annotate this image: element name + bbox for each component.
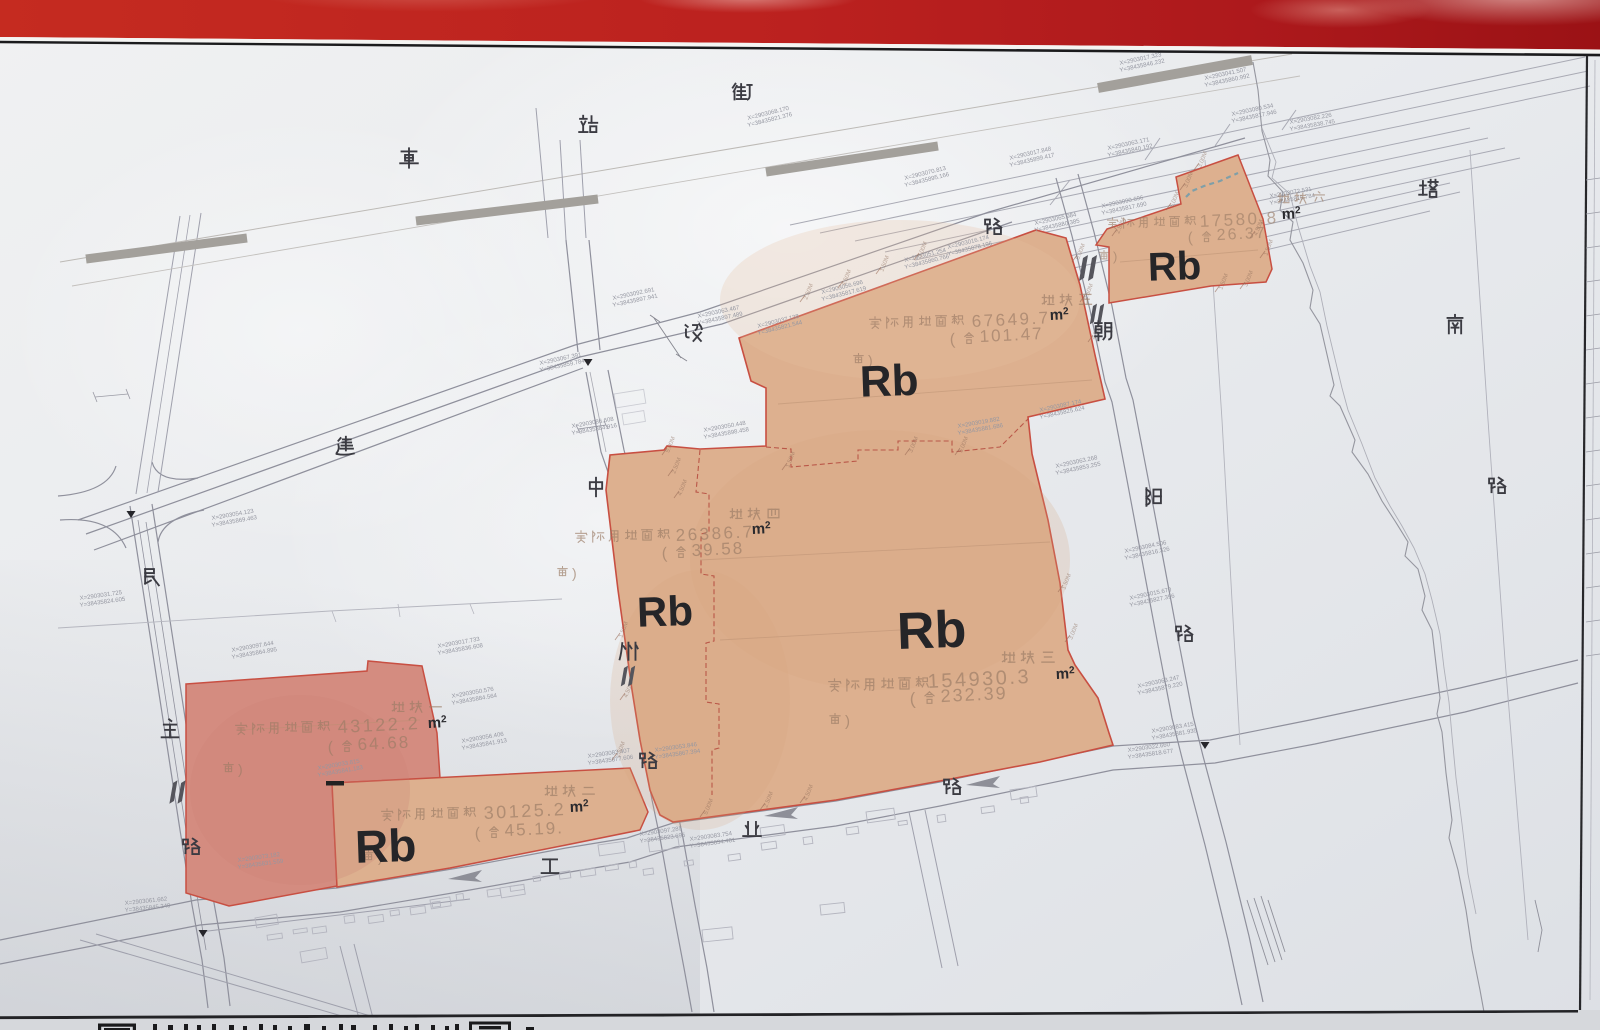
svg-text:): )	[572, 565, 577, 581]
svg-text:232.39: 232.39	[940, 683, 1008, 706]
svg-text:64.68: 64.68	[357, 733, 410, 755]
svg-text:39.58: 39.58	[691, 539, 744, 561]
svg-text:45.19.: 45.19.	[504, 818, 564, 840]
svg-text:Rb: Rb	[896, 601, 967, 661]
svg-text:): )	[845, 713, 850, 730]
svg-text:Rb: Rb	[859, 356, 919, 407]
svg-text:Rb: Rb	[1147, 244, 1202, 290]
svg-text:): )	[238, 761, 243, 777]
svg-text:Rb: Rb	[354, 819, 417, 873]
svg-text:Rb: Rb	[636, 587, 694, 636]
svg-text:101.47: 101.47	[979, 324, 1044, 346]
svg-text:26.37: 26.37	[1216, 225, 1267, 244]
svg-text:): )	[1113, 249, 1117, 264]
